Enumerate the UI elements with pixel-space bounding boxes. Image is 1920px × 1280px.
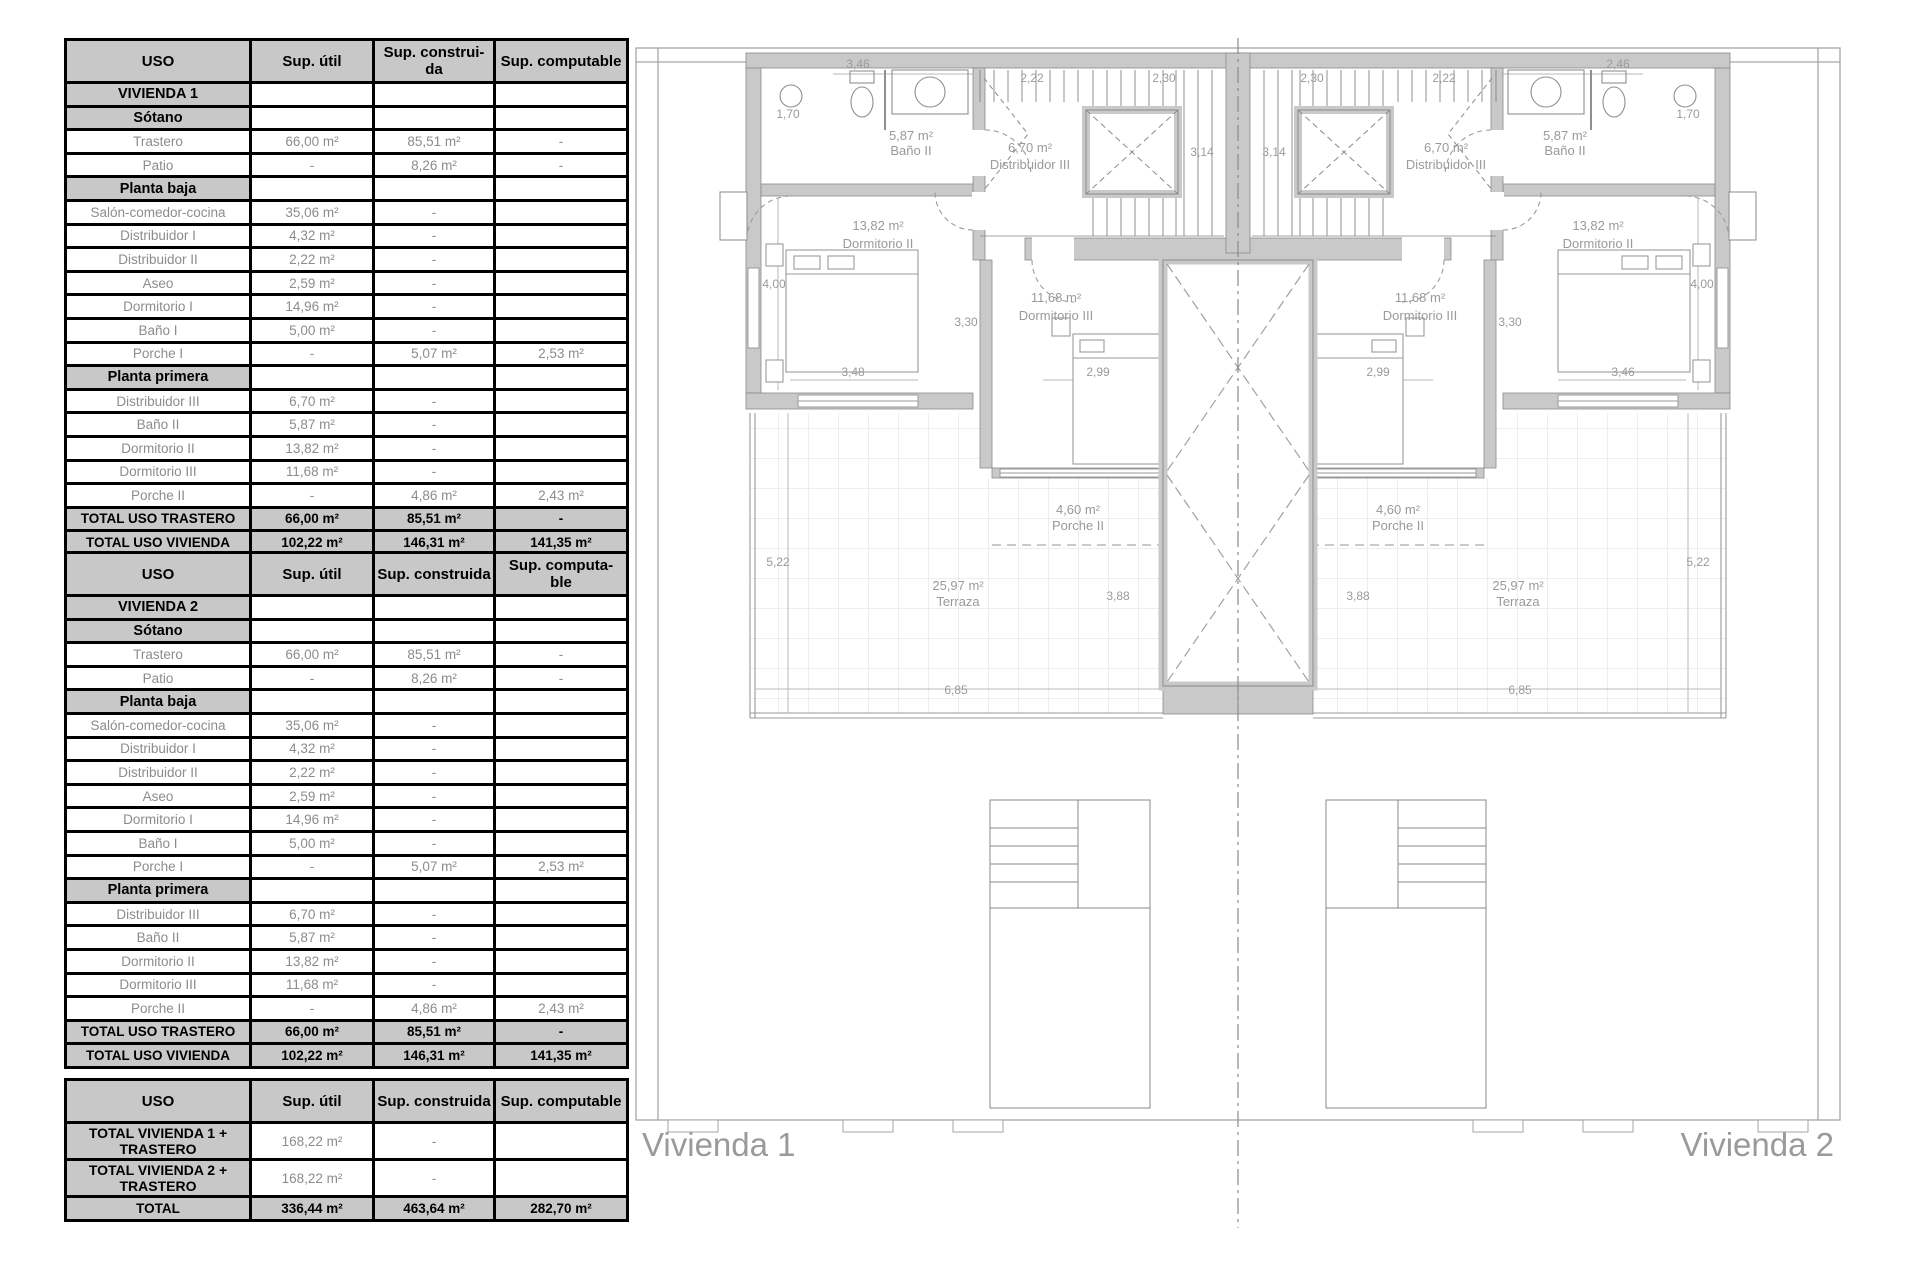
cell-value [251,83,374,107]
cell-value [495,366,628,390]
table-row: Trastero66,00 m²85,51 m²- [66,130,628,154]
dim-label: 2,30 [1152,71,1176,85]
cell-value: - [374,926,495,950]
table-row: Planta primera [66,366,628,390]
row-label: Distribuidor I [66,224,251,248]
cell-value: - [374,831,495,855]
cell-value: - [251,153,374,177]
dim-label: 2,99 [1366,365,1390,379]
table-row: Distribuidor III6,70 m²- [66,389,628,413]
row-label: TOTAL USO TRASTERO [66,507,251,531]
cell-value [495,389,628,413]
dim-label: 3,14 [1190,145,1214,159]
table-row: TOTAL USO VIVIENDA102,22 m²146,31 m²141,… [66,1044,628,1068]
row-label: VIVIENDA 2 [66,596,251,620]
cell-value: 2,43 m² [495,997,628,1021]
table-row: Dormitorio I14,96 m²- [66,808,628,832]
cell-value [495,413,628,437]
room-label-name: Porche II [1372,518,1424,533]
cell-value: - [374,389,495,413]
cell-value: 2,53 m² [495,342,628,366]
row-label: Sótano [66,106,251,130]
table-row: Distribuidor III6,70 m²- [66,902,628,926]
cell-value [495,831,628,855]
table-row: Dormitorio II13,82 m²- [66,436,628,460]
dim-label: 3,88 [1346,589,1370,603]
cell-value [495,713,628,737]
cell-value: - [374,248,495,272]
cell-value [495,83,628,107]
cell-value: 5,07 m² [374,855,495,879]
cell-value: - [495,643,628,667]
dwelling-title-right: Vivienda 2 [1680,1126,1834,1163]
cell-value [495,596,628,620]
cell-value: - [251,666,374,690]
row-label: Dormitorio III [66,460,251,484]
table-row: Baño I5,00 m²- [66,318,628,342]
dim-label: 2,30 [1300,71,1324,85]
cell-value [495,200,628,224]
room-label-name: Baño II [890,143,931,158]
dim-label: 2,46 [1606,57,1630,71]
cell-value [374,879,495,903]
cell-value: 35,06 m² [251,200,374,224]
column-header: Sup. computa- ble [495,553,628,596]
row-label: Distribuidor III [66,902,251,926]
room-label-name: Porche II [1052,518,1104,533]
room-label-area: 6,70 m² [1424,140,1469,155]
cell-value: - [374,200,495,224]
table-row: Sótano [66,106,628,130]
table-row: Dormitorio II13,82 m²- [66,949,628,973]
cell-value: - [374,436,495,460]
table-row: Porche II-4,86 m²2,43 m² [66,484,628,508]
cell-value: 141,35 m² [495,1044,628,1068]
cell-value: 6,70 m² [251,389,374,413]
cell-value: 2,59 m² [251,271,374,295]
cell-value [495,619,628,643]
cell-value: 5,87 m² [251,413,374,437]
cell-value: 14,96 m² [251,295,374,319]
header-row: USOSup. útilSup. construidaSup. computab… [66,1080,628,1123]
cell-value: 85,51 m² [374,507,495,531]
table-row: Distribuidor II2,22 m²- [66,761,628,785]
row-label: Sótano [66,619,251,643]
table-row: Aseo2,59 m²- [66,784,628,808]
cell-value: - [374,784,495,808]
dim-label: 2,99 [1086,365,1110,379]
row-label: Trastero [66,130,251,154]
row-label: Planta primera [66,879,251,903]
cell-value [374,690,495,714]
row-label: Distribuidor I [66,737,251,761]
cell-value: - [374,902,495,926]
cell-value: - [251,855,374,879]
basement-stairwell [990,800,1150,1108]
dim-label: 3,14 [1262,145,1286,159]
cell-value: 336,44 m² [251,1197,374,1221]
cell-value: 5,07 m² [374,342,495,366]
cell-value: 2,53 m² [495,855,628,879]
cell-value: - [374,460,495,484]
cell-value: - [495,507,628,531]
row-label: Trastero [66,643,251,667]
column-header: USO [66,40,251,83]
row-label: Porche I [66,342,251,366]
bedroom2-furniture [766,244,918,382]
room-label-area: 11,68 m² [1031,290,1082,305]
table-row: Porche II-4,86 m²2,43 m² [66,997,628,1021]
table-row: Patio-8,26 m²- [66,153,628,177]
table-row: Baño II5,87 m²- [66,926,628,950]
table-row: Porche I-5,07 m²2,53 m² [66,342,628,366]
cell-value: 66,00 m² [251,643,374,667]
cell-value: 13,82 m² [251,949,374,973]
room-label-area: 13,82 m² [1572,218,1624,233]
cell-value: 85,51 m² [374,130,495,154]
room-label-area: 11,68 m² [1395,290,1446,305]
cell-value: 85,51 m² [374,643,495,667]
row-label: Dormitorio II [66,949,251,973]
cell-value [374,177,495,201]
table-row: Sótano [66,619,628,643]
cell-value: 35,06 m² [251,713,374,737]
cell-value: 2,22 m² [251,761,374,785]
cell-value: - [374,413,495,437]
table-row: Salón-comedor-cocina35,06 m²- [66,713,628,737]
row-label: Porche I [66,855,251,879]
room-label-area: 6,70 m² [1008,140,1053,155]
cell-value [251,177,374,201]
bedroom3-furniture [1052,318,1161,464]
table-row: VIVIENDA 1 [66,83,628,107]
cell-value: 13,82 m² [251,436,374,460]
table-row: Trastero66,00 m²85,51 m²- [66,643,628,667]
areas-table-vivienda2: USOSup. útilSup. construidaSup. computa-… [64,551,629,1069]
cell-value: 4,86 m² [374,997,495,1021]
dim-label: 1,70 [1676,107,1700,121]
room-label-name: Terraza [1496,594,1540,609]
cell-value [251,619,374,643]
cell-value: 463,64 m² [374,1197,495,1221]
cell-value [495,761,628,785]
table-row: Distribuidor I4,32 m²- [66,224,628,248]
cell-value [495,1160,628,1197]
row-label: TOTAL USO TRASTERO [66,1020,251,1044]
table-row: TOTAL USO TRASTERO66,00 m²85,51 m²- [66,1020,628,1044]
row-label: Planta baja [66,690,251,714]
row-label: Porche II [66,484,251,508]
table-row: Patio-8,26 m²- [66,666,628,690]
cell-value: 2,43 m² [495,484,628,508]
row-label: Patio [66,666,251,690]
cell-value: - [374,973,495,997]
row-label: Dormitorio I [66,295,251,319]
room-label-name: Terraza [936,594,980,609]
cell-value [251,596,374,620]
dim-label: 5,22 [1686,555,1710,569]
row-label: Distribuidor III [66,389,251,413]
cell-value [495,737,628,761]
header-row: USOSup. útilSup. construidaSup. computa-… [66,553,628,596]
table-row: Salón-comedor-cocina35,06 m²- [66,200,628,224]
elevator-shaft [1086,110,1178,194]
row-label: Porche II [66,997,251,1021]
cell-value: - [374,224,495,248]
stair-direction-arrow [984,78,1028,190]
row-label: Dormitorio II [66,436,251,460]
row-label: TOTAL USO VIVIENDA [66,1044,251,1068]
room-label-area: 25,97 m² [932,578,984,593]
cell-value [495,784,628,808]
cell-value [495,879,628,903]
cell-value: - [374,737,495,761]
row-label: Baño I [66,831,251,855]
table-row: Aseo2,59 m²- [66,271,628,295]
cell-value: 85,51 m² [374,1020,495,1044]
cell-value [495,460,628,484]
row-label: TOTAL VIVIENDA 2 + TRASTERO [66,1160,251,1197]
cell-value: 4,32 m² [251,737,374,761]
cell-value: 66,00 m² [251,1020,374,1044]
room-label-area: 4,60 m² [1056,502,1101,517]
table-row: Dormitorio III11,68 m²- [66,460,628,484]
room-label-area: 4,60 m² [1376,502,1421,517]
row-label: Distribuidor II [66,761,251,785]
column-header: Sup. construida [374,553,495,596]
cell-value: - [374,271,495,295]
table-row: TOTAL336,44 m²463,64 m²282,70 m² [66,1197,628,1221]
room-label-area: 25,97 m² [1492,578,1544,593]
cell-value: 168,22 m² [251,1123,374,1160]
row-label: TOTAL VIVIENDA 1 + TRASTERO [66,1123,251,1160]
room-label-name: Distribuidor III [990,157,1070,172]
dim-label: 3,48 [841,365,865,379]
table-row: Planta primera [66,879,628,903]
cell-value: - [251,997,374,1021]
room-label-name: Dormitorio III [1019,308,1093,323]
dim-label: 6,85 [944,683,968,697]
table-row: TOTAL USO TRASTERO66,00 m²85,51 m²- [66,507,628,531]
row-label: Patio [66,153,251,177]
cell-value: - [374,713,495,737]
cell-value [495,902,628,926]
cell-value [251,690,374,714]
row-label: Salón-comedor-cocina [66,713,251,737]
dim-label: 3,46 [846,57,870,71]
cell-value [374,596,495,620]
row-label: Salón-comedor-cocina [66,200,251,224]
table-row: Distribuidor I4,32 m²- [66,737,628,761]
dim-label: 3,30 [1498,315,1522,329]
cell-value: 5,00 m² [251,831,374,855]
cell-value: - [495,130,628,154]
dim-label: 3,30 [954,315,978,329]
dwelling-title-left: Vivienda 1 [642,1126,796,1163]
cell-value: - [374,295,495,319]
cell-value: 102,22 m² [251,1044,374,1068]
row-label: Baño II [66,413,251,437]
cell-value: 168,22 m² [251,1160,374,1197]
dim-label: 3,88 [1106,589,1130,603]
cell-value [495,224,628,248]
cell-value [495,318,628,342]
cell-value [495,177,628,201]
floor-plan: 5,87 m² Baño II 6,70 m² Distribuidor III… [628,38,1860,1248]
row-label: Aseo [66,784,251,808]
table-row: Planta baja [66,690,628,714]
cell-value: 146,31 m² [374,1044,495,1068]
cell-value [495,949,628,973]
room-label-name: Distribuidor III [1406,157,1486,172]
column-header: Sup. construi- da [374,40,495,83]
cell-value [495,973,628,997]
row-label: Aseo [66,271,251,295]
row-label: Planta primera [66,366,251,390]
cell-value [251,366,374,390]
dim-label: 1,70 [776,107,800,121]
table-row: Baño II5,87 m²- [66,413,628,437]
cell-value: 4,86 m² [374,484,495,508]
table-row: Planta baja [66,177,628,201]
room-label-area: 13,82 m² [852,218,904,233]
room-label-name: Dormitorio II [843,236,914,251]
cell-value: - [374,761,495,785]
cell-value: 66,00 m² [251,130,374,154]
cell-value [495,248,628,272]
row-label: Planta baja [66,177,251,201]
row-label: VIVIENDA 1 [66,83,251,107]
cell-value [374,83,495,107]
column-header: Sup. útil [251,553,374,596]
cell-value [374,366,495,390]
row-label: Dormitorio III [66,973,251,997]
cell-value: - [251,484,374,508]
table-row: TOTAL VIVIENDA 1 + TRASTERO168,22 m²- [66,1123,628,1160]
row-label: Distribuidor II [66,248,251,272]
row-label: Dormitorio I [66,808,251,832]
cell-value [495,271,628,295]
column-header: Sup. computable [495,1080,628,1123]
cell-value: - [374,949,495,973]
room-label-name: Dormitorio II [1563,236,1634,251]
cell-value: 11,68 m² [251,460,374,484]
room-label-area: 5,87 m² [889,128,934,143]
cell-value: - [495,1020,628,1044]
cell-value: 66,00 m² [251,507,374,531]
cell-value [374,619,495,643]
column-header: Sup. construida [374,1080,495,1123]
cell-value [495,1123,628,1160]
row-label: Baño II [66,926,251,950]
cell-value [495,436,628,460]
column-header: Sup. útil [251,1080,374,1123]
dim-label: 5,22 [766,555,790,569]
column-header: USO [66,553,251,596]
cell-value: - [374,1123,495,1160]
cell-value: - [374,1160,495,1197]
table-row: Porche I-5,07 m²2,53 m² [66,855,628,879]
cell-value: 14,96 m² [251,808,374,832]
table-row: Distribuidor II2,22 m²- [66,248,628,272]
bathroom-fixtures [780,70,968,130]
cell-value: - [374,318,495,342]
cell-value [495,295,628,319]
cell-value: 5,00 m² [251,318,374,342]
dim-label: 2,22 [1432,71,1456,85]
cell-value: 5,87 m² [251,926,374,950]
cell-value [251,879,374,903]
cell-value: 4,32 m² [251,224,374,248]
table-row: TOTAL VIVIENDA 2 + TRASTERO168,22 m²- [66,1160,628,1197]
row-label: TOTAL [66,1197,251,1221]
row-label: Baño I [66,318,251,342]
cell-value: 2,59 m² [251,784,374,808]
dim-label: 6,85 [1508,683,1532,697]
header-row: USOSup. útilSup. construi- daSup. comput… [66,40,628,83]
cell-value: - [251,342,374,366]
cell-value [495,926,628,950]
room-label-area: 5,87 m² [1543,128,1588,143]
cell-value: - [495,666,628,690]
cell-value [251,106,374,130]
areas-table-vivienda1: USOSup. útilSup. construi- daSup. comput… [64,38,629,556]
cell-value [374,106,495,130]
cell-value: - [374,808,495,832]
room-label-name: Baño II [1544,143,1585,158]
column-header: Sup. computable [495,40,628,83]
dim-label: 4,00 [1690,277,1714,291]
cell-value [495,106,628,130]
cell-value: 6,70 m² [251,902,374,926]
room-label-name: Dormitorio III [1383,308,1457,323]
cell-value [495,808,628,832]
cell-value: 282,70 m² [495,1197,628,1221]
cell-value: - [495,153,628,177]
table-row: VIVIENDA 2 [66,596,628,620]
dim-label: 4,00 [762,277,786,291]
cell-value: 8,26 m² [374,153,495,177]
cell-value: 11,68 m² [251,973,374,997]
table-row: Dormitorio III11,68 m²- [66,973,628,997]
dim-label: 3,46 [1611,365,1635,379]
column-header: Sup. útil [251,40,374,83]
entry-recess [720,192,747,240]
dim-label: 2,22 [1020,71,1044,85]
table-row: Dormitorio I14,96 m²- [66,295,628,319]
column-header: USO [66,1080,251,1123]
areas-table-totals: USOSup. útilSup. construidaSup. computab… [64,1078,629,1222]
cell-value: 2,22 m² [251,248,374,272]
cell-value: 8,26 m² [374,666,495,690]
table-row: Baño I5,00 m²- [66,831,628,855]
cell-value [495,690,628,714]
